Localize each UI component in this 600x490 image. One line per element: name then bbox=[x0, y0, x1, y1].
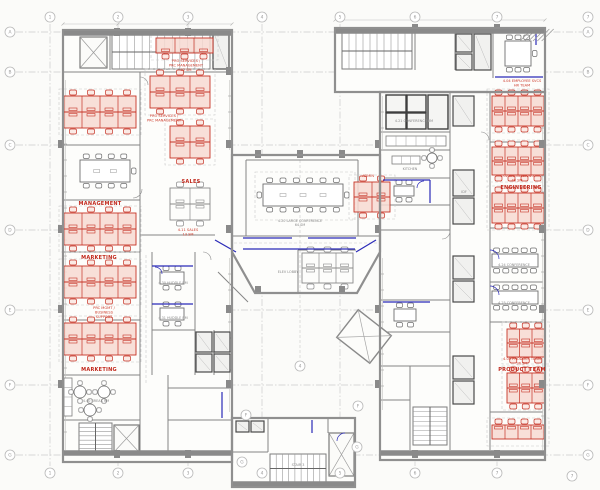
room-label-red-small: 40 SM bbox=[511, 179, 522, 183]
chair bbox=[88, 246, 95, 251]
chair bbox=[197, 70, 204, 75]
chair bbox=[79, 408, 83, 412]
chair bbox=[157, 70, 164, 75]
chair bbox=[510, 323, 517, 328]
room-label-department: PRODUCT TEAM bbox=[498, 367, 545, 373]
room-label-red-small: ADMIN bbox=[362, 174, 374, 178]
chair bbox=[175, 286, 181, 291]
chair bbox=[495, 224, 502, 229]
room-label-department: SALES bbox=[182, 179, 201, 185]
chair bbox=[280, 178, 286, 183]
chair bbox=[396, 180, 402, 185]
chair bbox=[70, 90, 77, 95]
room-label-red-small: PRC MGMT / bbox=[93, 306, 115, 310]
conference-table bbox=[80, 160, 130, 182]
chair bbox=[521, 269, 527, 274]
room-label-gray: ELEV LOBBY bbox=[278, 270, 299, 274]
chair bbox=[494, 269, 500, 274]
chair bbox=[197, 109, 204, 114]
grid-bubble-label: 3 bbox=[187, 471, 190, 477]
chair bbox=[70, 260, 77, 265]
grid-bubble-label: 1 bbox=[49, 471, 52, 477]
column-pier bbox=[185, 450, 191, 458]
room-label-department: MANAGEMENT bbox=[79, 201, 122, 207]
closet-room bbox=[428, 95, 448, 129]
chair bbox=[521, 248, 527, 253]
chair bbox=[87, 390, 91, 394]
chair bbox=[521, 419, 528, 424]
chair bbox=[163, 286, 169, 291]
chair bbox=[530, 269, 536, 274]
grid-bubble-label: G bbox=[586, 453, 590, 459]
column-pier bbox=[114, 450, 120, 458]
chair bbox=[293, 178, 299, 183]
grid-bubble-label: 5 bbox=[339, 15, 342, 21]
chair bbox=[512, 285, 518, 290]
chair bbox=[521, 127, 528, 132]
desk-bank bbox=[156, 38, 213, 53]
chair bbox=[106, 299, 113, 304]
chair bbox=[494, 306, 500, 311]
grid-bubble-label: 7 bbox=[496, 15, 499, 21]
chair bbox=[533, 51, 538, 57]
room-label-gray: 4.24 CONFERENCE bbox=[498, 263, 530, 267]
chair bbox=[508, 224, 515, 229]
chair bbox=[106, 129, 113, 134]
chair bbox=[93, 390, 97, 394]
chair bbox=[512, 306, 518, 311]
chair bbox=[108, 184, 114, 189]
closet-room bbox=[407, 95, 426, 112]
room-label-red-small: 4.04 EMPLOYEE SVCS bbox=[503, 79, 542, 83]
room-label-red-small: PRC MANAGEMENT bbox=[169, 64, 204, 68]
chair bbox=[333, 208, 339, 213]
chair bbox=[111, 390, 115, 394]
chair bbox=[197, 159, 204, 164]
grid-bubble-label: B bbox=[8, 70, 11, 76]
chair bbox=[69, 390, 73, 394]
chair bbox=[438, 156, 442, 160]
chair bbox=[508, 141, 515, 146]
chair bbox=[88, 299, 95, 304]
chair bbox=[320, 178, 326, 183]
chair bbox=[121, 154, 127, 159]
chair bbox=[320, 208, 326, 213]
chair bbox=[267, 208, 273, 213]
chair bbox=[280, 208, 286, 213]
closet-room bbox=[386, 95, 406, 112]
chair bbox=[78, 399, 82, 403]
room-label-department: MARKETING bbox=[81, 255, 117, 261]
chair bbox=[257, 192, 262, 198]
room-label-gray: 4.40 BREAK RM bbox=[83, 399, 109, 403]
room-label-department: ENGINEERING bbox=[500, 185, 541, 191]
room-label-department: MARKETING bbox=[81, 367, 117, 373]
chair bbox=[106, 356, 113, 361]
chair bbox=[97, 408, 101, 412]
grid-bubble-label: A bbox=[586, 30, 589, 36]
room-label-red-small: 4.11 SALES bbox=[178, 228, 199, 232]
chair bbox=[106, 90, 113, 95]
round-table bbox=[84, 404, 96, 416]
grid-bubble-label: B bbox=[586, 70, 589, 76]
chair bbox=[88, 417, 92, 421]
chair bbox=[508, 127, 515, 132]
chair bbox=[530, 285, 536, 290]
chair bbox=[197, 120, 204, 125]
chair bbox=[70, 299, 77, 304]
floor-plan-canvas: 11223344556677AABBCCDDEEFFGGFFGG477PRO S… bbox=[0, 0, 600, 490]
grid-bubble-label: 7 bbox=[587, 15, 590, 21]
grid-bubble-label: 6 bbox=[414, 15, 417, 21]
chair bbox=[521, 306, 527, 311]
chair bbox=[88, 356, 95, 361]
chair bbox=[96, 184, 102, 189]
chair bbox=[175, 322, 181, 327]
chair bbox=[121, 184, 127, 189]
chair bbox=[503, 306, 509, 311]
chair bbox=[333, 178, 339, 183]
chair bbox=[177, 159, 184, 164]
room-label-red-small: PRO SERVICES / bbox=[172, 59, 201, 63]
chair bbox=[406, 180, 412, 185]
grid-bubble-label: 6 bbox=[414, 471, 417, 477]
column-pier bbox=[412, 450, 418, 458]
room-label-red-small: PRO SERVICES / bbox=[150, 114, 179, 118]
chair bbox=[197, 221, 204, 226]
chair bbox=[70, 246, 77, 251]
grid-bubble-label: 1 bbox=[49, 15, 52, 21]
room-label-red-small: PRC MANAGEMENT bbox=[147, 119, 182, 123]
chair bbox=[124, 260, 131, 265]
grid-bubble-label: E bbox=[587, 308, 590, 314]
chair bbox=[307, 178, 313, 183]
chair bbox=[521, 141, 528, 146]
room-label-red-small: 36 SM bbox=[516, 362, 527, 366]
chair bbox=[408, 303, 414, 308]
chair bbox=[124, 246, 131, 251]
chair bbox=[162, 54, 169, 59]
round-table bbox=[98, 386, 110, 398]
chair bbox=[324, 284, 331, 289]
room-label-red-small: 4.02 ENGINEERING bbox=[500, 174, 534, 178]
kitchen-counter bbox=[392, 156, 420, 164]
chair bbox=[535, 404, 542, 409]
chair bbox=[430, 164, 434, 168]
chair bbox=[397, 323, 403, 328]
room-label-gray: 4.31 HUDDLE RM bbox=[158, 316, 187, 320]
room-label-red-small: 13 SM bbox=[182, 233, 193, 237]
room-label-gray: 64 SM bbox=[295, 223, 306, 227]
chair bbox=[163, 266, 169, 271]
conference-table bbox=[263, 184, 343, 206]
grid-bubble-label: 4 bbox=[299, 364, 302, 370]
chair bbox=[102, 381, 106, 385]
chair bbox=[397, 303, 403, 308]
chair bbox=[177, 221, 184, 226]
column-pier bbox=[494, 450, 500, 458]
chair bbox=[515, 68, 521, 73]
chair bbox=[524, 68, 530, 73]
room-label-gray: 4.30 HUDDLE RM bbox=[158, 281, 187, 285]
chair bbox=[124, 317, 131, 322]
conference-table bbox=[505, 41, 531, 66]
chair bbox=[88, 90, 95, 95]
room-label-gray: 4.25 CONFERENCE bbox=[498, 301, 530, 305]
chair bbox=[534, 176, 541, 181]
chair bbox=[396, 198, 402, 203]
chair bbox=[535, 323, 542, 328]
chair bbox=[506, 68, 512, 73]
grid-bubble-label: 7 bbox=[571, 474, 574, 480]
grid-bubble-label: E bbox=[9, 308, 12, 314]
chair bbox=[200, 54, 207, 59]
chair bbox=[124, 299, 131, 304]
chair bbox=[503, 285, 509, 290]
chair bbox=[83, 184, 89, 189]
conference-table bbox=[394, 309, 416, 321]
chair bbox=[495, 141, 502, 146]
room-label-gray: 4.21 CONFERENCE RM bbox=[395, 119, 433, 123]
chair bbox=[494, 248, 500, 253]
round-table bbox=[74, 386, 86, 398]
grid-bubble-label: G bbox=[240, 460, 244, 466]
chair bbox=[522, 323, 529, 328]
chair bbox=[506, 35, 512, 40]
grid-bubble-label: 3 bbox=[187, 15, 190, 21]
chair bbox=[345, 192, 350, 198]
room-label-red-small: SUPPORT bbox=[96, 315, 113, 319]
chair bbox=[530, 248, 536, 253]
chair bbox=[534, 127, 541, 132]
conference-table bbox=[394, 186, 414, 196]
chair bbox=[106, 207, 113, 212]
chair bbox=[70, 129, 77, 134]
room-label-red-small: 4.05 PRODUCT TEAM bbox=[503, 357, 541, 361]
grid-bubble-label: 7 bbox=[496, 471, 499, 477]
chair bbox=[132, 168, 137, 174]
chair bbox=[267, 178, 273, 183]
chair bbox=[88, 129, 95, 134]
chair bbox=[503, 248, 509, 253]
chair bbox=[512, 248, 518, 253]
room-label-gray: KITCHEN bbox=[403, 167, 418, 171]
chair bbox=[430, 148, 434, 152]
chair bbox=[124, 356, 131, 361]
chair bbox=[408, 323, 414, 328]
chair bbox=[124, 207, 131, 212]
chair bbox=[108, 154, 114, 159]
chair bbox=[521, 224, 528, 229]
chair bbox=[522, 404, 529, 409]
chair bbox=[422, 156, 426, 160]
chair bbox=[510, 404, 517, 409]
chair bbox=[96, 154, 102, 159]
chair bbox=[530, 306, 536, 311]
room-label-gray: IDF bbox=[461, 190, 467, 194]
grid-bubble-label: A bbox=[8, 30, 11, 36]
chair bbox=[508, 419, 515, 424]
grid-bubble-label: 4 bbox=[261, 471, 264, 477]
room-label-red-small: 32 SM bbox=[180, 68, 191, 72]
chair bbox=[70, 207, 77, 212]
chair bbox=[106, 246, 113, 251]
grid-bubble-label: 2 bbox=[117, 15, 120, 21]
chair bbox=[360, 213, 367, 218]
chair bbox=[512, 269, 518, 274]
chair bbox=[175, 266, 181, 271]
chair bbox=[406, 198, 412, 203]
chair bbox=[515, 35, 521, 40]
chair bbox=[521, 285, 527, 290]
chair bbox=[88, 317, 95, 322]
chair bbox=[534, 419, 541, 424]
grid-bubble-label: C bbox=[8, 143, 11, 149]
chair bbox=[124, 129, 131, 134]
chair bbox=[70, 317, 77, 322]
grid-bubble-label: G bbox=[8, 453, 12, 459]
chair bbox=[495, 127, 502, 132]
chair bbox=[88, 207, 95, 212]
chair bbox=[307, 208, 313, 213]
chair bbox=[124, 90, 131, 95]
floor-plan-drawing: 11223344556677AABBCCDDEEFFGGFFGG477PRO S… bbox=[0, 0, 600, 490]
grid-bubble-label: C bbox=[586, 143, 589, 149]
round-table bbox=[427, 153, 437, 163]
grid-bubble-label: 5 bbox=[339, 471, 342, 477]
chair bbox=[83, 154, 89, 159]
chair bbox=[293, 208, 299, 213]
room-label-red-small: BUSINESS bbox=[95, 311, 114, 315]
room-label-red-small: HR TEAM bbox=[514, 84, 530, 88]
grid-bubble-label: 4 bbox=[261, 15, 264, 21]
chair bbox=[503, 269, 509, 274]
chair bbox=[495, 419, 502, 424]
grid-bubble-label: G bbox=[355, 445, 359, 451]
room-label-gray: STAIR 3 bbox=[292, 463, 305, 467]
chair bbox=[78, 381, 82, 385]
chair bbox=[307, 284, 314, 289]
chair bbox=[163, 322, 169, 327]
grid-bubble-label: 2 bbox=[117, 471, 120, 477]
chair bbox=[70, 356, 77, 361]
